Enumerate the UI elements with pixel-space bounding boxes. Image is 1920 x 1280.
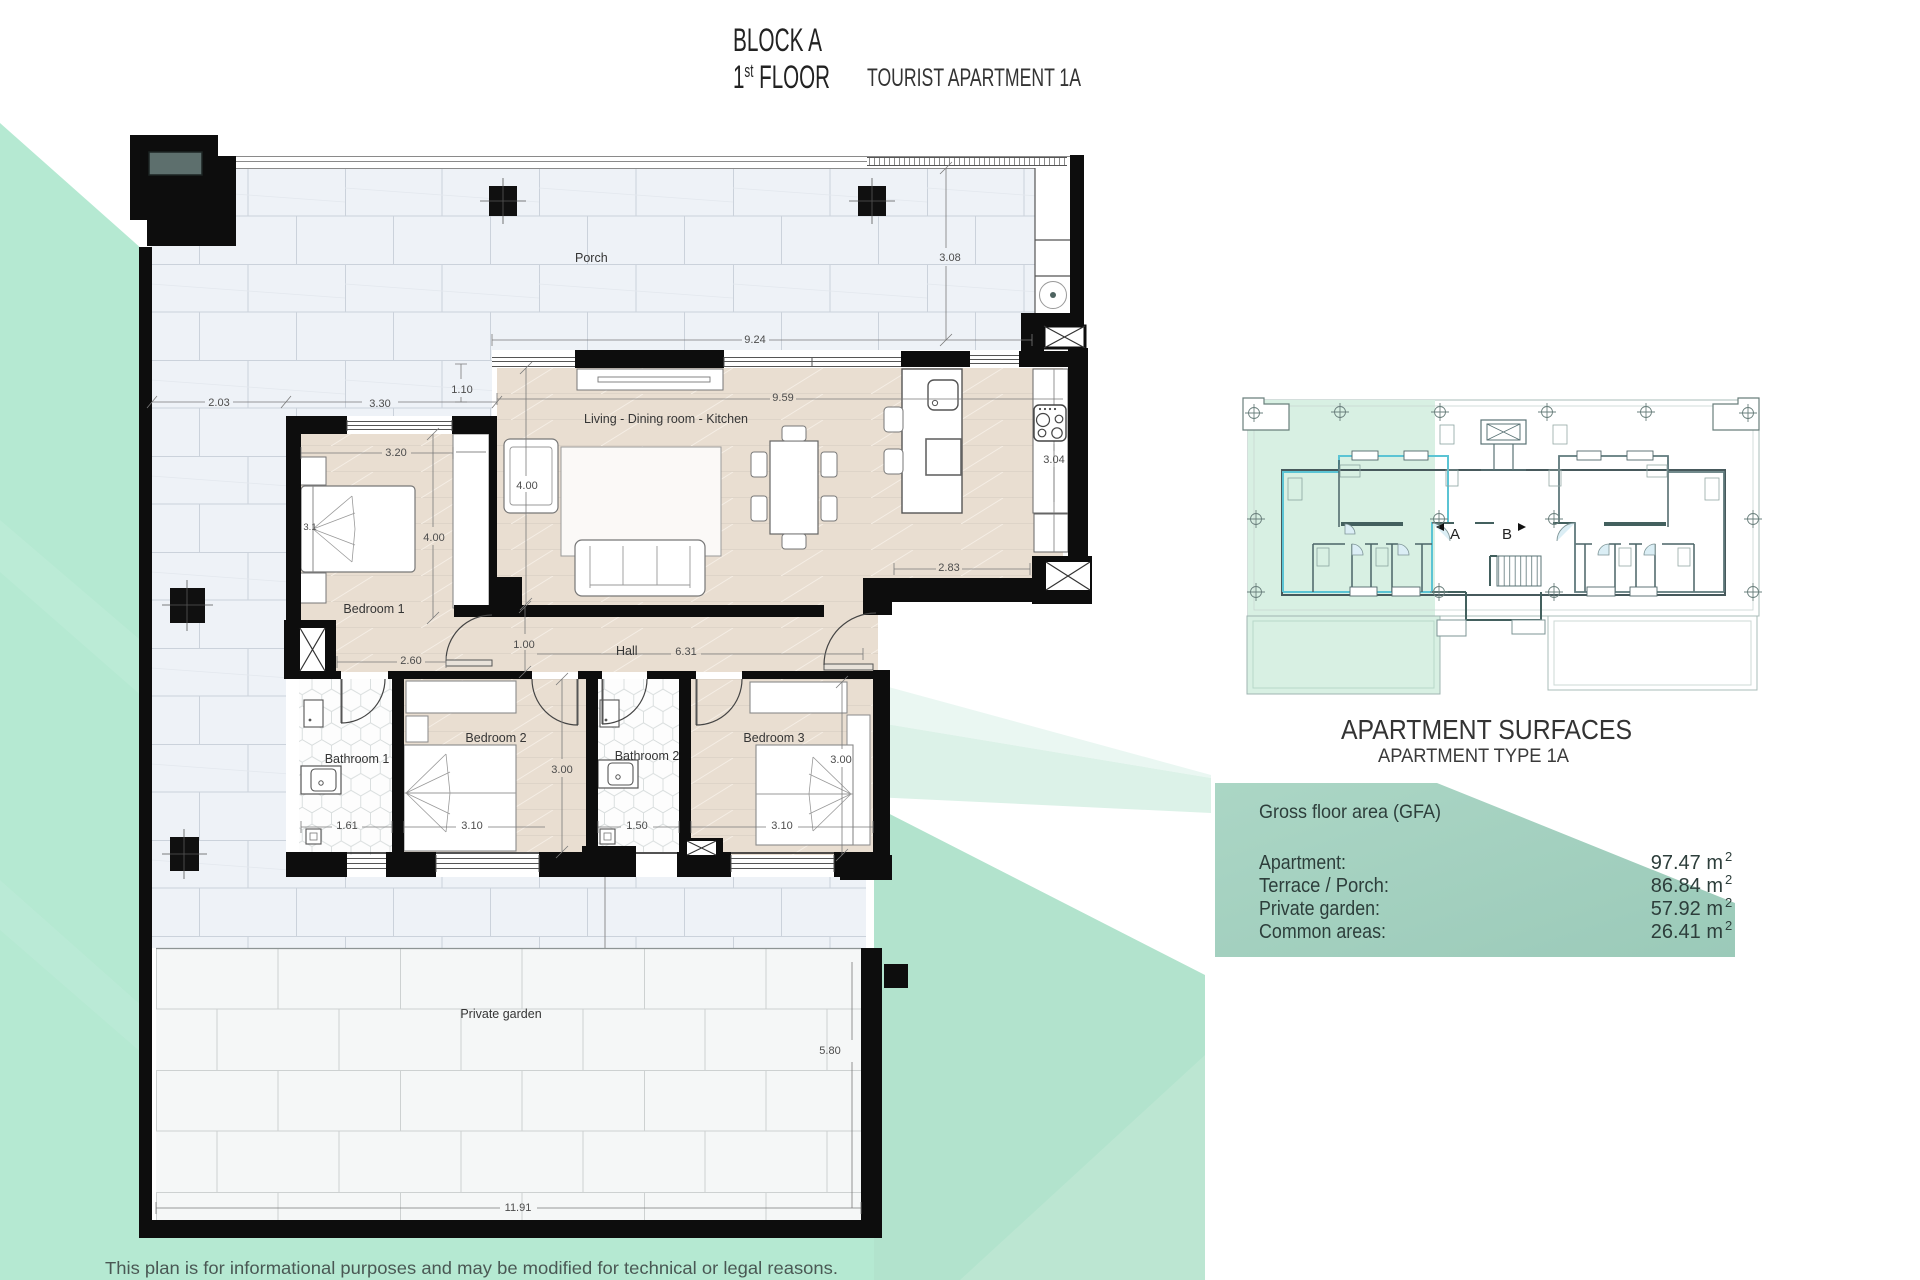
svg-text:97.47 m: 97.47 m [1651,852,1723,874]
svg-text:2: 2 [1725,918,1732,933]
svg-text:Hall: Hall [616,644,638,658]
svg-text:4.00: 4.00 [423,532,444,544]
svg-text:1.61: 1.61 [336,820,357,832]
svg-text:2.03: 2.03 [208,397,229,409]
svg-text:Bedroom 2: Bedroom 2 [465,731,526,745]
svg-text:9.59: 9.59 [772,392,793,404]
svg-text:3.20: 3.20 [385,447,406,459]
svg-text:TOURIST APARTMENT 1A: TOURIST APARTMENT 1A [867,64,1081,92]
svg-text:B: B [1502,526,1512,543]
svg-text:Bedroom 1: Bedroom 1 [343,602,404,616]
svg-text:2.60: 2.60 [400,655,421,667]
svg-text:BLOCK A: BLOCK A [733,22,822,58]
svg-text:26.41 m: 26.41 m [1651,921,1723,943]
svg-text:86.84 m: 86.84 m [1651,875,1723,897]
svg-text:2: 2 [1725,872,1732,887]
svg-text:1.00: 1.00 [513,639,534,651]
svg-text:1.50: 1.50 [626,820,647,832]
svg-text:3.08: 3.08 [939,252,960,264]
svg-text:1.10: 1.10 [451,384,472,396]
svg-text:APARTMENT SURFACES: APARTMENT SURFACES [1341,714,1632,745]
svg-text:Terrace / Porch:: Terrace / Porch: [1259,875,1389,897]
svg-text:Bedroom 3: Bedroom 3 [743,731,804,745]
svg-text:3.04: 3.04 [1043,454,1064,466]
svg-text:3.10: 3.10 [771,820,792,832]
svg-text:3.30: 3.30 [369,398,390,410]
svg-text:Gross floor area (GFA): Gross floor area (GFA) [1259,801,1441,823]
svg-text:Private garden: Private garden [460,1007,541,1021]
svg-text:Apartment:: Apartment: [1259,852,1346,874]
svg-text:A: A [1450,526,1460,543]
svg-text:Private garden:: Private garden: [1259,898,1380,920]
svg-text:2.83: 2.83 [938,562,959,574]
svg-text:This plan is for informational: This plan is for informational purposes … [105,1258,838,1278]
svg-text:APARTMENT TYPE 1A: APARTMENT TYPE 1A [1378,745,1569,767]
svg-text:3.00: 3.00 [830,754,851,766]
svg-text:5.80: 5.80 [819,1045,840,1057]
svg-text:2: 2 [1725,849,1732,864]
svg-text:9.24: 9.24 [744,334,765,346]
svg-text:Porch: Porch [575,251,608,265]
svg-text:3.10: 3.10 [461,820,482,832]
svg-text:6.31: 6.31 [675,646,696,658]
svg-text:Living - Dining room - Kitchen: Living - Dining room - Kitchen [584,412,748,426]
svg-text:3.1: 3.1 [303,522,316,533]
svg-text:2: 2 [1725,895,1732,910]
svg-text:11.91: 11.91 [505,1202,532,1214]
svg-text:4.00: 4.00 [516,480,537,492]
svg-text:Bathroom 2: Bathroom 2 [615,749,680,763]
svg-text:57.92 m: 57.92 m [1651,898,1723,920]
svg-text:Bathroom 1: Bathroom 1 [325,752,390,766]
svg-text:3.00: 3.00 [551,764,572,776]
svg-text:Common areas:: Common areas: [1259,921,1386,943]
